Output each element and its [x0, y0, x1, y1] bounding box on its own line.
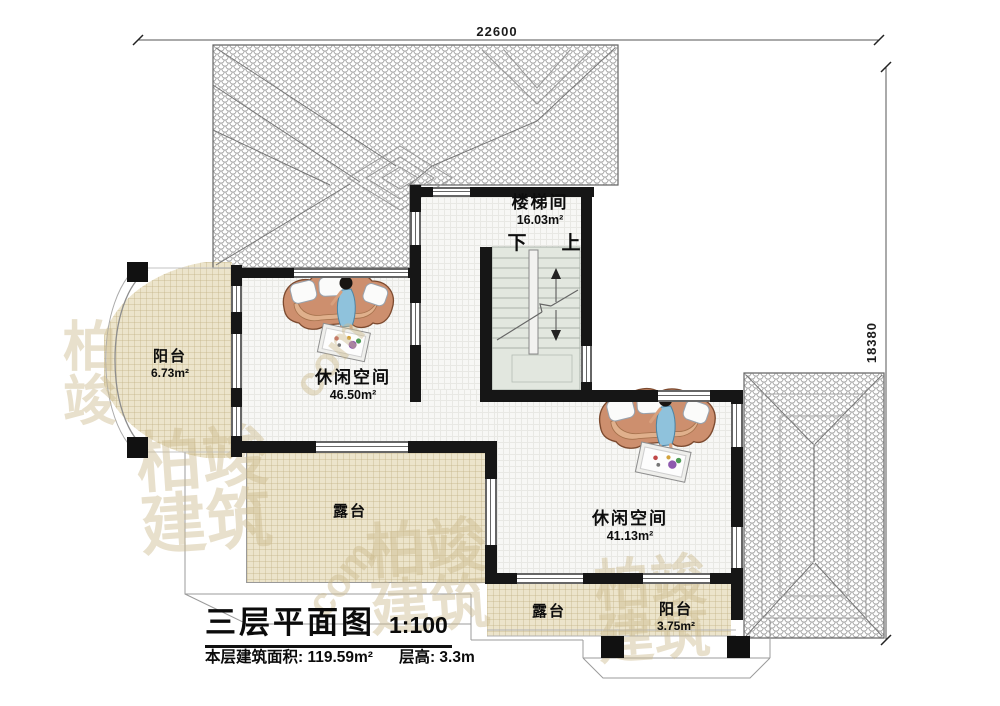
room-label-leisure-left: 休闲空间 46.50m²: [315, 369, 391, 402]
room-area: 41.13m²: [592, 529, 668, 543]
window: [643, 573, 710, 584]
room-label-stairwell: 楼梯间 16.03m²: [512, 194, 569, 227]
room-name: 休闲空间: [315, 369, 391, 387]
stairs-up-label: 上: [561, 228, 580, 255]
room-name: 楼梯间: [512, 194, 569, 212]
floor-area-label: 本层建筑面积: 119.59m²: [205, 649, 373, 666]
room-name: 露台: [333, 504, 367, 520]
title-sub-row: 本层建筑面积: 119.59m²层高: 3.3m: [205, 645, 475, 667]
window: [316, 441, 408, 453]
window: [231, 286, 242, 312]
title-block: 三层平面图1:100: [205, 597, 452, 648]
watermark: 柏竣: [58, 318, 109, 426]
wall: [480, 390, 658, 402]
floor-plan-canvas: 柏竣 柏竣建筑 com 柏竣建筑 com 柏竣建筑 22600 18380 楼梯…: [0, 0, 1000, 706]
column: [727, 636, 750, 658]
column: [127, 437, 148, 458]
roof-top-left-lower: [213, 45, 410, 268]
dimension-right: 18380: [864, 322, 879, 363]
room-label-balcony-left: 阳台 6.73m²: [151, 349, 189, 380]
room-name: 休闲空间: [592, 510, 668, 528]
window: [231, 407, 242, 436]
room-name: 阳台: [657, 602, 695, 618]
room-label-terrace-bottom: 露台: [532, 604, 566, 620]
window: [731, 527, 743, 568]
window: [517, 573, 583, 584]
floor-height-label: 层高: 3.3m: [399, 649, 475, 666]
room-label-terrace-left: 露台: [333, 504, 367, 520]
room-name: 露台: [532, 604, 566, 620]
window: [410, 303, 421, 345]
window: [731, 404, 743, 447]
room-name: 阳台: [151, 349, 189, 365]
window: [231, 334, 242, 388]
column: [601, 636, 624, 658]
room-area: 46.50m²: [315, 388, 391, 402]
roof-right: [744, 373, 884, 638]
window: [433, 187, 470, 197]
room-area: 16.03m²: [512, 213, 569, 227]
room-area: 3.75m²: [657, 619, 695, 633]
plan-scale: 1:100: [389, 612, 448, 638]
window: [294, 268, 408, 278]
column: [127, 262, 148, 282]
window: [485, 479, 497, 545]
window: [410, 212, 421, 245]
room-area: 6.73m²: [151, 366, 189, 380]
floor-leisure-right: [497, 400, 731, 573]
wall: [480, 247, 492, 392]
room-label-balcony-bottom: 阳台 3.75m²: [657, 602, 695, 633]
dimension-top: 22600: [476, 24, 517, 39]
window: [658, 390, 710, 402]
window: [581, 346, 592, 382]
stairs-down-label: 下: [507, 228, 526, 255]
plan-title: 三层平面图: [205, 605, 375, 640]
room-label-leisure-right: 休闲空间 41.13m²: [592, 510, 668, 543]
